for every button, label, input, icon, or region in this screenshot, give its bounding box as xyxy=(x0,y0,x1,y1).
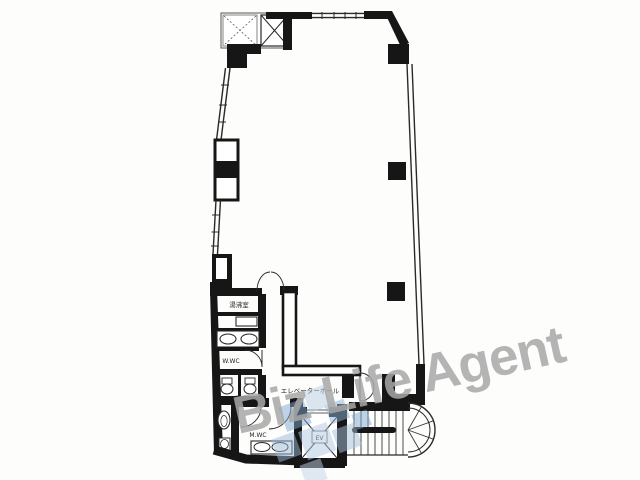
sink-basin-icon xyxy=(241,334,257,344)
corner-block xyxy=(388,44,409,64)
wall-segment xyxy=(266,12,312,19)
wall-segment xyxy=(364,11,388,19)
floor-plan-drawing: 湯沸室 W.WC M.WC xyxy=(0,0,640,480)
shelf xyxy=(236,317,257,326)
wall-segment xyxy=(217,312,259,316)
toilet-icon xyxy=(222,378,232,384)
pillar-window xyxy=(216,258,227,279)
wall-segment xyxy=(215,369,262,375)
wall-segment xyxy=(217,347,259,351)
pillar xyxy=(388,162,406,180)
hollow-wall xyxy=(283,292,296,368)
pillar xyxy=(215,161,238,178)
kitchenette-label: 湯沸室 xyxy=(229,300,249,309)
pillar xyxy=(387,282,405,301)
wall-segment xyxy=(210,288,262,296)
sink-basin-icon xyxy=(254,443,270,452)
womens-wc-label: W.WC xyxy=(222,358,239,365)
sink-basin-icon xyxy=(220,334,236,344)
floor-plan-page: 湯沸室 W.WC M.WC xyxy=(0,0,640,480)
